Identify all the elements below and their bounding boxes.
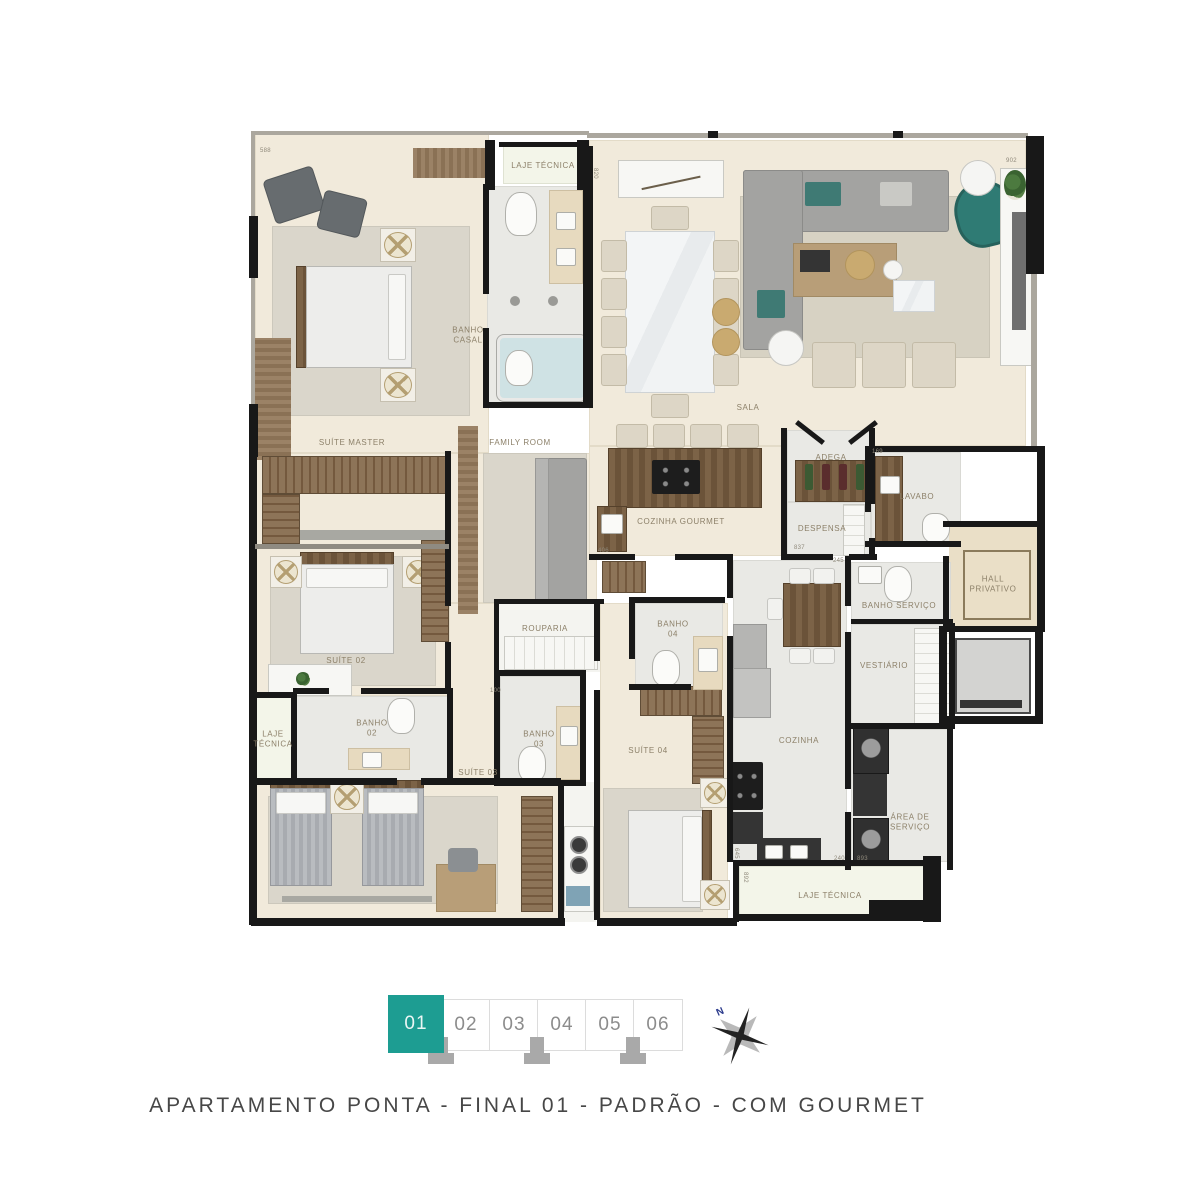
room-label: SUÍTE 04 — [628, 746, 667, 756]
dimension-label: 588 — [260, 148, 271, 154]
wine-bottle — [839, 464, 847, 490]
pillows — [388, 274, 406, 360]
sink — [765, 845, 783, 859]
plant — [1004, 170, 1026, 200]
kitchen-counter — [733, 624, 767, 670]
room-label: BANHO 03 — [523, 730, 554, 751]
sink — [556, 212, 576, 230]
wall — [597, 918, 737, 926]
column-marker-icon — [530, 1037, 544, 1053]
toilet — [884, 566, 912, 602]
wine-bottle — [822, 464, 830, 490]
room-label: LAJE TÉCNICA — [253, 730, 292, 751]
room-label: ROUPARIA — [522, 624, 568, 634]
wall — [587, 133, 1028, 138]
bookshelf — [602, 561, 646, 593]
room-label: SALA — [737, 403, 760, 413]
chair — [789, 568, 811, 584]
pillow — [805, 182, 841, 206]
tv — [1012, 212, 1026, 330]
wall — [445, 642, 451, 694]
toilet — [922, 513, 950, 543]
wall — [629, 603, 635, 659]
wall — [949, 623, 955, 723]
wall — [629, 684, 691, 690]
dimension-label: 100 — [490, 688, 501, 694]
compass-north-label: N — [715, 1006, 726, 1019]
sink — [601, 514, 623, 534]
room-label: LAJE TÉCNICA — [798, 891, 862, 901]
nightstand-fan-decor — [380, 368, 416, 402]
pouf — [712, 298, 740, 326]
wall — [947, 723, 953, 870]
dimension-label: 902 — [1006, 158, 1017, 164]
lounge-chair — [862, 342, 906, 388]
toilet — [505, 350, 533, 386]
chair — [789, 648, 811, 664]
wall — [675, 554, 733, 560]
toilet — [387, 698, 415, 734]
pillows — [306, 568, 388, 588]
wall — [445, 451, 451, 606]
sink — [790, 845, 808, 859]
wall — [865, 446, 1043, 452]
wall — [733, 860, 739, 922]
wall — [849, 554, 877, 560]
dimension-label: 645 — [733, 848, 739, 859]
wall — [558, 782, 564, 922]
heater-knob — [570, 856, 588, 874]
wall — [249, 216, 258, 278]
stove — [731, 762, 763, 810]
wardrobe — [521, 796, 553, 912]
dimension-label: 245 — [833, 558, 844, 564]
wall — [781, 554, 833, 560]
unit-tab-06[interactable]: 06 — [633, 999, 683, 1051]
room-label: BANHO 04 — [657, 620, 688, 641]
dimension-label: 837 — [794, 545, 805, 551]
wall — [483, 328, 489, 408]
sink — [362, 752, 382, 768]
room-label: SUÍTE 02 — [326, 656, 365, 666]
wall — [1035, 626, 1043, 724]
bar-stool — [727, 424, 759, 448]
wall — [494, 780, 586, 786]
wardrobe — [413, 148, 485, 178]
walkin-closet — [262, 494, 300, 544]
wall — [494, 599, 499, 675]
sink — [880, 476, 900, 494]
room-label: SUÍTE MASTER — [319, 438, 385, 448]
wall — [255, 544, 449, 549]
wall — [1031, 274, 1037, 448]
room-label: BANHO SERVIÇO — [862, 601, 936, 611]
sink — [698, 648, 718, 672]
wine-bottle — [856, 464, 864, 490]
wall — [1026, 136, 1044, 274]
wall — [594, 690, 600, 920]
wall — [580, 676, 586, 784]
unit-tab-02[interactable]: 02 — [441, 999, 491, 1051]
decor-bowl — [845, 250, 875, 280]
room-label: HALL PRIVATIVO — [970, 575, 1017, 596]
wall — [865, 452, 871, 512]
room-label: COZINHA GOURMET — [637, 517, 725, 527]
side-cabinet — [255, 338, 291, 460]
wall — [249, 404, 258, 457]
room-label: ÁREA DE SERVIÇO — [890, 813, 930, 834]
bath-vanity — [549, 190, 583, 284]
room-label: SUÍTE 03 — [458, 768, 497, 778]
wardrobe — [692, 716, 724, 784]
pouf — [712, 328, 740, 356]
dining-chair — [601, 354, 627, 386]
wine-bottle — [805, 464, 813, 490]
wall — [869, 900, 941, 920]
pillows — [682, 816, 702, 902]
bar-stool — [653, 424, 685, 448]
wall — [845, 632, 851, 728]
wall — [865, 541, 961, 547]
fridge — [733, 668, 771, 718]
wall — [494, 599, 604, 604]
dining-chair — [713, 240, 739, 272]
breakfast-table — [783, 583, 841, 647]
room-label: ADEGA — [815, 453, 846, 463]
nightstand-fan-decor — [380, 228, 416, 262]
room-label: COZINHA — [779, 736, 819, 746]
mat — [566, 886, 590, 906]
wall — [253, 131, 589, 135]
wall — [583, 146, 593, 408]
heater-knob — [570, 836, 588, 854]
wall — [589, 554, 635, 560]
plant — [296, 672, 310, 686]
chair — [813, 568, 835, 584]
elevator-door — [960, 700, 1022, 708]
tv-panel — [458, 426, 478, 614]
pillow — [276, 792, 326, 814]
dining-chair — [601, 240, 627, 272]
sink — [556, 248, 576, 266]
dining-chair — [651, 206, 689, 230]
tray — [800, 250, 830, 272]
wall — [845, 556, 851, 606]
dimension-label: 169 — [872, 449, 883, 455]
toilet — [518, 746, 546, 782]
washer — [853, 726, 889, 774]
wall — [483, 184, 489, 294]
linen-shelves — [504, 636, 598, 670]
pillow — [880, 182, 912, 206]
floor-lamp — [768, 330, 804, 366]
closet-shelf — [300, 530, 448, 540]
cooktop — [652, 460, 700, 494]
wall — [499, 142, 585, 147]
bar-stool — [690, 424, 722, 448]
unit-tab-01[interactable]: 01 — [388, 995, 444, 1053]
decor — [883, 260, 903, 280]
lounge-chair — [812, 342, 856, 388]
wall — [1037, 446, 1045, 632]
side-table — [960, 160, 996, 196]
wall — [447, 688, 453, 784]
wall — [293, 688, 329, 694]
dimension-label: 240 — [834, 856, 845, 862]
room-label: LAJE TÉCNICA — [511, 161, 575, 171]
dining-chair — [651, 394, 689, 418]
wall — [708, 131, 718, 138]
wall — [251, 778, 397, 785]
wardrobe — [640, 686, 722, 716]
nightstand-fan-decor — [700, 880, 730, 910]
wall — [249, 455, 257, 695]
wall — [893, 131, 903, 138]
walkin-closet — [262, 456, 450, 494]
room-label: LAVABO — [900, 492, 934, 502]
pillow — [368, 792, 418, 814]
shower-head — [548, 296, 558, 306]
room-label: FAMILY ROOM — [489, 438, 550, 448]
dining-chair — [601, 316, 627, 348]
wall — [629, 597, 725, 603]
compass-icon: N — [706, 1002, 770, 1066]
room-label: DESPENSA — [798, 524, 846, 534]
low-shelf — [282, 896, 432, 902]
chair — [767, 598, 783, 620]
column-marker-icon — [626, 1037, 640, 1053]
toilet — [652, 650, 680, 686]
wall — [845, 723, 955, 729]
pillow — [757, 290, 785, 318]
wall — [594, 601, 600, 661]
wall — [781, 428, 787, 560]
desk-chair — [448, 848, 478, 872]
wall — [483, 402, 589, 408]
dimension-label: 406 — [598, 548, 609, 554]
wall — [361, 688, 451, 694]
nightstand-fan-decor — [270, 556, 302, 588]
wall — [943, 521, 1043, 527]
nightstand-fan-decor — [700, 778, 730, 808]
dining-chair — [713, 354, 739, 386]
sofa-back — [535, 458, 549, 604]
pantry-shelf — [843, 504, 865, 556]
wall — [494, 670, 586, 676]
dining-chair — [601, 278, 627, 310]
room-label: BANHO CASAL — [452, 326, 483, 347]
floor-plan-page: LAJE TÉCNICABANHO CASALSALASUÍTE MASTERF… — [0, 0, 1200, 1200]
chair — [813, 648, 835, 664]
dimension-label: 820 — [592, 168, 598, 179]
wall — [939, 626, 947, 724]
room-label: VESTIÁRIO — [860, 661, 908, 671]
wall — [851, 619, 953, 624]
laundry-counter — [853, 774, 887, 816]
sink — [560, 726, 578, 746]
dimension-label: 893 — [857, 856, 868, 862]
room-label: BANHO 02 — [356, 719, 387, 740]
wall — [727, 636, 733, 862]
shower-head — [510, 296, 520, 306]
wall — [845, 729, 851, 789]
unit-tab-04[interactable]: 04 — [537, 999, 587, 1051]
nightstand-fan-decor — [330, 780, 364, 814]
wall — [485, 140, 495, 190]
wall — [727, 554, 733, 598]
side-table — [893, 280, 935, 312]
dimension-label: 892 — [742, 872, 748, 883]
sink — [858, 566, 882, 584]
plan-caption: APARTAMENTO PONTA - FINAL 01 - PADRÃO - … — [149, 1094, 927, 1118]
toilet — [505, 192, 537, 236]
wall — [251, 918, 565, 926]
lounge-chair — [912, 342, 956, 388]
dining-table — [625, 231, 715, 393]
bar-stool — [616, 424, 648, 448]
